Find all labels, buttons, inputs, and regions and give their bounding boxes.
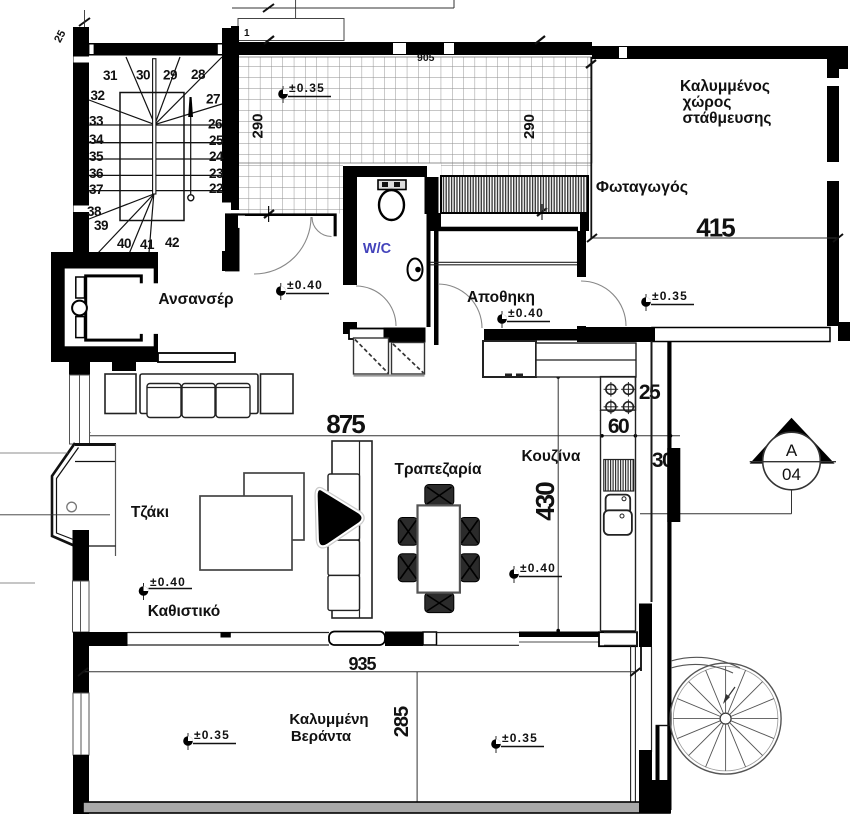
svg-text:35: 35 [89,149,104,164]
svg-text:28: 28 [191,67,206,82]
svg-text:Καθιστικό: Καθιστικό [148,603,220,620]
svg-text:36: 36 [89,166,104,181]
svg-text:39: 39 [94,218,108,233]
svg-text:Αποθηκη: Αποθηκη [467,289,535,306]
svg-text:415: 415 [696,213,735,243]
svg-text:Τζάκι: Τζάκι [131,504,169,521]
svg-text:935: 935 [348,654,376,674]
svg-text:22: 22 [209,181,223,196]
svg-text:24: 24 [209,149,224,164]
svg-text:Φωταγωγός: Φωταγωγός [596,179,688,196]
svg-text:31: 31 [103,68,118,83]
svg-text:04: 04 [782,465,801,484]
svg-text:±0.40: ±0.40 [287,278,323,292]
svg-text:Βεράντα: Βεράντα [291,728,352,745]
svg-text:Καλυμμένος: Καλυμμένος [680,78,770,95]
svg-text:A: A [786,441,798,460]
svg-text:42: 42 [165,235,179,250]
svg-text:στάθμευσης: στάθμευσης [683,110,772,127]
svg-text:25: 25 [639,381,661,404]
svg-text:32: 32 [90,88,104,103]
svg-text:875: 875 [326,409,365,439]
svg-text:Ανσανσέρ: Ανσανσέρ [158,291,233,308]
svg-text:905: 905 [417,52,435,64]
svg-text:±0.35: ±0.35 [289,81,325,95]
svg-text:±0.35: ±0.35 [194,728,230,742]
svg-text:40: 40 [117,236,131,251]
svg-text:W/C: W/C [363,241,392,257]
svg-text:±0.35: ±0.35 [502,731,538,745]
svg-text:23: 23 [209,166,224,181]
svg-text:±0.35: ±0.35 [652,289,688,303]
svg-text:34: 34 [89,132,104,147]
svg-text:1: 1 [244,28,250,39]
svg-text:Κουζίνα: Κουζίνα [522,448,581,465]
svg-text:±0.40: ±0.40 [150,575,186,589]
svg-text:26: 26 [208,117,223,132]
svg-text:χώρος: χώρος [683,94,732,111]
svg-text:29: 29 [163,68,177,83]
svg-text:33: 33 [89,114,104,129]
svg-text:285: 285 [391,706,413,737]
svg-text:290: 290 [521,114,538,139]
svg-text:30: 30 [136,68,150,83]
svg-text:±0.40: ±0.40 [520,561,556,575]
svg-text:25: 25 [209,133,224,148]
svg-text:60: 60 [608,415,629,438]
svg-text:Καλυμμένη: Καλυμμένη [289,711,368,728]
svg-text:±0.40: ±0.40 [508,306,544,320]
svg-text:430: 430 [530,482,560,521]
svg-text:27: 27 [206,92,220,107]
svg-text:38: 38 [87,204,102,219]
svg-text:37: 37 [89,182,103,197]
svg-text:41: 41 [140,237,155,252]
svg-text:Τραπεζαρία: Τραπεζαρία [394,461,482,478]
svg-text:290: 290 [250,113,267,138]
